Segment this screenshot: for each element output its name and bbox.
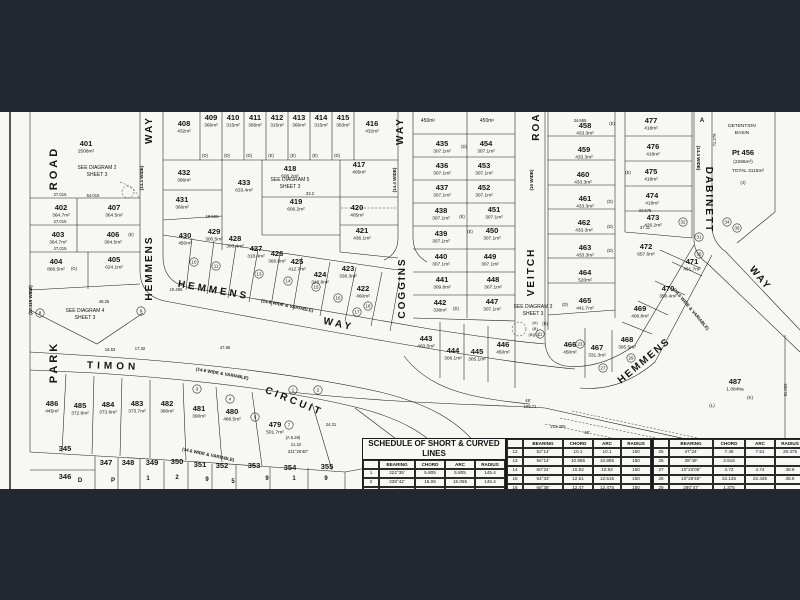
annotation: (2266m²) [733, 159, 753, 165]
lot-number-405: 405 [108, 255, 121, 264]
easement-mark: (D) [334, 153, 340, 158]
lot-number-459: 459 [578, 145, 591, 154]
lot-number-452: 452 [478, 183, 491, 192]
curve-bubble-number: 35 [735, 226, 740, 231]
lot-area-477: 418m² [644, 126, 658, 132]
schedule-header-cell [653, 439, 669, 448]
lot-number-347: 347 [100, 458, 113, 467]
lot-number-480: 480 [226, 407, 239, 416]
lot-area-460: 433.3m² [574, 180, 592, 186]
street-label: ROAD [48, 146, 60, 190]
curve-bubble-number: 32 [681, 220, 686, 225]
schedule-row: 1222°35'5.8055.805145.4 [363, 469, 505, 478]
street-label: (14.4 WIDE) [139, 165, 144, 190]
lot-number-450: 450 [486, 226, 499, 235]
schedule-cell: 28.375 [775, 448, 800, 457]
lot-number-438: 438 [435, 206, 448, 215]
lot-number-422: 422 [357, 284, 370, 293]
easement-mark: (D) [562, 302, 568, 307]
lot-area-417: 405m² [352, 170, 366, 176]
dimension: 34.665 [574, 118, 587, 123]
schedule-cell: 15.065 [445, 478, 475, 487]
lot-area-463: 433.3m² [576, 253, 594, 259]
schedule-cell: 60°24' [523, 466, 563, 475]
schedule-cell: 56°14' [523, 457, 563, 466]
lot-number-409: 409 [205, 113, 218, 122]
lot-number-430: 430 [179, 231, 192, 240]
lot-area-462: 433.3m² [575, 228, 593, 234]
schedule-cell: 52°14' [523, 448, 563, 457]
dimension: 54.015 [87, 193, 100, 198]
schedule-row: 1564°33'12.5112.515150 [507, 475, 651, 484]
annotation: SEE DIAGRAM 4 [66, 308, 105, 314]
lot-number-447: 447 [486, 297, 499, 306]
lot-number-475: 475 [645, 167, 658, 176]
lot-area-452: 307.1m² [475, 193, 493, 199]
lot-number-482: 482 [161, 399, 174, 408]
lot-area-436: 307.1m² [433, 171, 451, 177]
lot-area-487: 1.084ha [726, 387, 744, 393]
schedule-cell: 10.885 [563, 457, 593, 466]
lot-area-423: 338.3m² [339, 274, 357, 280]
lot-number-443: 443 [420, 334, 433, 343]
easement-mark: (D) [246, 153, 252, 158]
lot-area-403: 364.7m² [49, 240, 67, 246]
lot-number-437: 437 [436, 183, 449, 192]
lot-number-413: 413 [293, 113, 306, 122]
lot-number-429: 429 [208, 227, 221, 236]
easement-mark: (D) [453, 306, 459, 311]
lot-number-431: 431 [176, 195, 189, 204]
lot-number-451: 451 [488, 205, 501, 214]
dimension: 17.32 [135, 346, 146, 351]
lot-area-469: 406.8m² [631, 314, 649, 320]
lot-area-438: 307.1m² [432, 216, 450, 222]
lot-area-427: 318.4m² [247, 254, 265, 260]
dimension: 71.279 [712, 133, 717, 146]
lot-number-468: 468 [621, 335, 634, 344]
lot-number-428: 428 [229, 234, 242, 243]
lot-area-415: 363m² [336, 123, 350, 129]
lot-number-466: 466 [564, 340, 577, 349]
lot-area-458: 433.3m² [576, 131, 594, 137]
schedule-header-cell: BEARING [669, 439, 713, 448]
street-label: (14.4 WIDE) [392, 167, 397, 192]
schedule-cell: 7.49 [713, 448, 745, 457]
easement-mark: (D) [607, 224, 613, 229]
lot-number-414: 414 [315, 113, 328, 122]
screenshot-stage: 4012508m²402364.7m²407364.5m²403364.7m²4… [0, 0, 800, 600]
street-label: DABINETT [703, 167, 714, 234]
schedule-cell: 1 [363, 469, 379, 478]
schedule-cell: 7.51 [745, 448, 775, 457]
schedule-cell: 238°42' [379, 478, 415, 487]
schedule-cell [745, 457, 775, 466]
lot-area-459: 433.3m² [575, 155, 593, 161]
dimension: (A 5.28) [286, 435, 301, 440]
schedule-cell: 39°49' [669, 457, 713, 466]
lot-number-423: 423 [342, 264, 355, 273]
schedule-row: 2639°49'3.515 [653, 457, 800, 466]
lot-area-404: 866.5m² [47, 267, 65, 273]
lot-number-417: 417 [353, 160, 366, 169]
schedule-cell: 27 [653, 466, 669, 475]
lot-number-448: 448 [487, 275, 500, 284]
lot-area-411: 366m² [248, 123, 262, 129]
lot-number-485: 485 [74, 401, 87, 410]
lot-number-471: 471 [686, 257, 699, 266]
lot-area-440: 307.1m² [432, 262, 450, 268]
schedule-cell: 4.72 [713, 466, 745, 475]
easement-mark: (D) [607, 248, 613, 253]
lot-area-470: 350.4m² [659, 294, 677, 300]
schedule-header-cell: ARC [745, 439, 775, 448]
curve-bubble-number: 18 [366, 304, 371, 309]
schedule-cell: 22.135 [713, 475, 745, 484]
lot-number-411: 411 [249, 113, 261, 122]
schedule-cell: 25 [653, 448, 669, 457]
lot-number-484: 484 [102, 400, 115, 409]
schedule-cell: 28 [653, 475, 669, 484]
letterbox-bottom [0, 489, 800, 600]
curve-bubble-number: 34 [725, 220, 730, 225]
lot-number-406: 406 [107, 230, 120, 239]
lot-area-407: 364.5m² [105, 213, 123, 219]
lot-number-442: 442 [434, 298, 447, 307]
easement-mark: (E) [459, 214, 465, 219]
lot-number-463: 463 [579, 243, 592, 252]
dimension: 37.11 [640, 225, 651, 230]
lot-number-449: 449 [484, 252, 497, 261]
lot-number-401: 401 [80, 139, 93, 148]
street-label: (16 WIDE) [529, 169, 534, 191]
lot-area-426: 366.8m² [268, 259, 286, 265]
schedule-cell: 150 [621, 475, 651, 484]
lot-area-402: 364.7m² [52, 213, 70, 219]
lot-area-413: 366m² [292, 123, 306, 129]
lot-number-454: 454 [480, 139, 493, 148]
schedule-cell: 10.1 [593, 448, 621, 457]
schedule-title-line1: SCHEDULE OF SHORT & CURVED [363, 439, 505, 449]
easement-mark: (D) [202, 153, 208, 158]
lot-number-436: 436 [436, 161, 449, 170]
lot-number-462: 462 [578, 218, 591, 227]
dimension: 48.25 [99, 299, 110, 304]
easement-mark: (E) [467, 229, 473, 234]
schedule-header-row: BEARINGCHORDARCRADIUS [363, 460, 505, 469]
lot-number-483: 483 [131, 399, 144, 408]
lot-number-412: 412 [271, 113, 284, 122]
lot-number-353: 353 [248, 461, 261, 470]
curve-bubble-number: 10 [192, 260, 197, 265]
annotation: SHEET 3 [87, 172, 108, 178]
lot-number-348: 348 [122, 458, 135, 467]
lot-number-404: 404 [50, 257, 63, 266]
dimension: 18.505 [206, 214, 219, 219]
schedule-cell: 12 [507, 448, 523, 457]
easement-mark: (E) [268, 153, 274, 158]
lot-area-482: 380m² [160, 409, 174, 415]
lot-area-420: 405m² [350, 213, 364, 219]
lot-number-473: 473 [647, 213, 660, 222]
lot-number-402: 402 [55, 203, 68, 212]
lot-number-444: 444 [447, 346, 460, 355]
street-label: WAY [144, 116, 155, 144]
lot-number-461: 461 [579, 194, 592, 203]
street-label: TIMON [87, 360, 140, 373]
lot-number-352: 352 [216, 461, 229, 470]
lot-area-465: 441.7m² [576, 306, 594, 312]
lot-area-410: 315m² [226, 123, 240, 129]
annotation: (L) [709, 403, 715, 408]
schedule-title-line2: LINES [363, 449, 505, 459]
lot-area-437: 307.1m² [433, 193, 451, 199]
lot-area-432: 366m² [177, 178, 191, 184]
schedule-cell: 10.92 [593, 466, 621, 475]
schedule-cell: 38.9 [775, 475, 800, 484]
easement-mark: (E) [290, 153, 296, 158]
lot-number-345: 345 [59, 444, 72, 453]
lot-area-480: 488.5m² [223, 417, 241, 423]
lot-area-442: 338m² [433, 308, 447, 314]
annotation: SHEET 3 [523, 311, 544, 317]
lot-area-439: 307.1m² [432, 239, 450, 245]
schedule-cell: 13 [507, 457, 523, 466]
curve-bubble-number: 15 [314, 285, 319, 290]
annotation: (A) [532, 320, 538, 325]
schedule-cell: 64°33' [523, 475, 563, 484]
schedule-cell: 2 [363, 478, 379, 487]
lot-number-415: 415 [337, 113, 350, 122]
dimension: 10.485 [170, 287, 183, 292]
lot-area-448: 307.1m² [484, 285, 502, 291]
lot-number-486: 486 [46, 399, 59, 408]
lot-number-424: 424 [314, 270, 327, 279]
schedule-header-cell [363, 460, 379, 469]
lot-area-479: 501.7m² [266, 430, 284, 436]
schedule-row: 1460°24'10.9210.92150 [507, 466, 651, 475]
schedule-cell: 22.435 [745, 475, 775, 484]
dimension: 33.2 [306, 191, 315, 196]
lot-area-485: 372.8m² [71, 411, 89, 417]
lot-number-416: 416 [366, 119, 379, 128]
annotation: 450m² [480, 118, 495, 124]
street-label: (14.4 WIDE) [696, 146, 701, 171]
easement-mark: (E) [542, 321, 548, 326]
lot-number-403: 403 [52, 230, 65, 239]
lot-number-439: 439 [435, 229, 448, 238]
schedule-cell: 10°28'45" [669, 475, 713, 484]
schedule-header-cell: RADIUS [775, 439, 800, 448]
lot-area-468: 395.5m² [618, 345, 636, 351]
curve-bubble-number: 21 [538, 332, 543, 337]
curve-bubble-number: 29 [629, 356, 634, 361]
schedule-cell: 26 [653, 457, 669, 466]
lot-area-405: 624.1m² [105, 265, 123, 271]
lot-number-355: 355 [321, 462, 334, 471]
easement-mark: (E) [609, 121, 615, 126]
lot-area-435: 307.1m² [433, 149, 451, 155]
lot-number-435: 435 [436, 139, 449, 148]
lot-area-454: 307.1m² [477, 149, 495, 155]
annotation: D [78, 478, 83, 484]
schedule-cell: 12.51 [563, 475, 593, 484]
dimension: 47.66 [220, 345, 231, 350]
lot-area-421: 436.1m² [353, 236, 371, 242]
schedule-row: 2547°24'7.497.5128.375 [653, 448, 800, 457]
street-label: PARK [48, 341, 60, 383]
lot-area-449: 307.1m² [481, 262, 499, 268]
lot-area-408: 432m² [177, 129, 191, 135]
easement-mark: (G) [71, 266, 78, 271]
lot-number-453: 453 [478, 161, 491, 170]
lot-number-440: 440 [435, 252, 448, 261]
lot-number-465: 465 [579, 296, 592, 305]
curve-bubble-number: 13 [257, 272, 262, 277]
lot-number-432: 432 [178, 168, 191, 177]
lot-number-441: 441 [436, 275, 449, 284]
street-label: (20.115 WIDE) [28, 285, 33, 315]
lot-area-447: 307.1m² [483, 307, 501, 313]
schedule-cell: 47°24' [669, 448, 713, 457]
lot-number-474: 474 [646, 191, 659, 200]
lot-area-428: 303.4m² [226, 244, 244, 250]
lot-area-475: 418m² [644, 177, 658, 183]
lot-area-430: 450m² [178, 241, 192, 247]
lot-number-419: 419 [290, 197, 303, 206]
schedule-row: 1252°14'10.110.1150 [507, 448, 651, 457]
schedule-header-row: BEARINGCHORDARCRADIUS [653, 439, 800, 448]
lot-number-421: 421 [356, 226, 369, 235]
lot-area-471: 461.7m² [683, 267, 701, 273]
lot-number-481: 481 [193, 404, 206, 413]
schedule-header-row: BEARINGCHORDARCRADIUS [507, 439, 651, 448]
schedule-header-cell: CHORD [563, 439, 593, 448]
lot-number-351: 351 [194, 460, 207, 469]
lot-area-406: 364.5m² [104, 240, 122, 246]
lot-number-420: 420 [351, 203, 364, 212]
lot-area-444: 306.1m² [444, 356, 462, 362]
schedule-header-cell: CHORD [415, 460, 445, 469]
schedule-cell: 150 [621, 466, 651, 475]
lot-number-464: 464 [579, 268, 592, 277]
lot-area-467: 331.3m² [588, 353, 606, 359]
dimension: 221°26'40" [288, 449, 309, 454]
annotation: SEE DIAGRAM 5 [271, 177, 310, 183]
curve-bubble-number: 14 [286, 279, 291, 284]
lot-number-349: 349 [146, 458, 159, 467]
lot-area-446: 450m² [496, 350, 510, 356]
lot-number-472: 472 [640, 242, 653, 251]
annotation: SHEET 3 [280, 184, 301, 190]
lot-number-477: 477 [645, 116, 658, 125]
lot-number-469: 469 [634, 304, 647, 313]
dimension: 27.015 [54, 192, 67, 197]
lot-area-453: 307.1m² [475, 171, 493, 177]
lot-area-483: 373.7m² [128, 409, 146, 415]
schedule-header-cell [507, 439, 523, 448]
schedule-cell: 14 [507, 466, 523, 475]
schedule-header-cell: RADIUS [621, 439, 651, 448]
lot-area-422: 460m² [356, 294, 370, 300]
lot-number-479: 479 [269, 420, 282, 429]
easement-mark: (E) [312, 153, 318, 158]
lot-area-429: 300.5m² [205, 237, 223, 243]
schedule-cell: 145.4 [475, 478, 505, 487]
dimension: 21.22 [291, 442, 302, 447]
lot-area-476: 418m² [646, 152, 660, 158]
schedule-cell: 145.4 [475, 469, 505, 478]
schedule-cell: 222°35' [379, 469, 415, 478]
lot-number-445: 445 [471, 347, 484, 356]
street-label: WAY [395, 117, 406, 145]
schedule-cell: 4.74 [745, 466, 775, 475]
lot-number-476: 476 [647, 142, 660, 151]
curve-bubble-number: 36 [697, 252, 702, 257]
lot-number-350: 350 [171, 457, 184, 466]
schedule-header-cell: BEARING [379, 460, 415, 469]
annotation: SEE DIAGRAM 2 [78, 165, 117, 171]
street-label: HEMMENS [144, 235, 155, 300]
dimension: 24.21 [326, 422, 337, 427]
lot-number-425: 425 [291, 257, 304, 266]
lot-number-407: 407 [108, 203, 121, 212]
lot-area-412: 315m² [270, 123, 284, 129]
annotation: P [111, 478, 115, 484]
lot-number-426: 426 [271, 249, 284, 258]
dimension: 109.71 [524, 404, 537, 409]
schedule-cell: 10°23'05" [669, 466, 713, 475]
lot-area-450: 307.1m² [483, 236, 501, 242]
dimension: 40' [584, 430, 590, 435]
dimension: 91.065 [783, 383, 788, 396]
schedule-cell: 5.805 [445, 469, 475, 478]
easement-mark: (E) [625, 170, 631, 175]
dimension: 34.675 [639, 208, 652, 213]
lot-area-445: 305.1m² [468, 357, 486, 363]
lot-number-418: 418 [284, 164, 297, 173]
lot-area-451: 307.1m² [485, 215, 503, 221]
schedule-header-cell: CHORD [713, 439, 745, 448]
schedule-table-title: SCHEDULE OF SHORT & CURVED LINES [363, 439, 505, 460]
annotation: A [700, 118, 705, 124]
schedule-header-cell: ARC [445, 460, 475, 469]
lot-number-467: 467 [591, 343, 604, 352]
schedule-cell: 10.1 [563, 448, 593, 457]
schedule-cell: 15 [507, 475, 523, 484]
lot-area-425: 412.7m² [288, 267, 306, 273]
schedule-cell: 38.9 [775, 466, 800, 475]
schedule-header-cell: BEARING [523, 439, 563, 448]
lot-area-431: 366m² [175, 205, 189, 211]
dimension: 27.015 [54, 246, 67, 251]
lot-area-414: 315m² [314, 123, 328, 129]
annotation: TOTAL 3115m² [732, 168, 764, 174]
schedule-cell: 5.805 [415, 469, 445, 478]
lot-number-346: 346 [59, 472, 72, 481]
easement-mark: (D) [461, 144, 467, 149]
annotation: SEE DIAGRAM 3 [514, 304, 553, 310]
schedule-header-cell: ARC [593, 439, 621, 448]
lot-number-427: 427 [250, 244, 263, 253]
lot-area-401: 2508m² [78, 149, 95, 155]
lot-number-410: 410 [227, 113, 240, 122]
easement-mark: (D) [224, 153, 230, 158]
lot-area-486: 445m² [45, 409, 59, 415]
annotation: (K) [747, 395, 754, 400]
curve-bubble-number: 23 [578, 342, 583, 347]
lot-area-472: 657.6m² [637, 252, 655, 258]
